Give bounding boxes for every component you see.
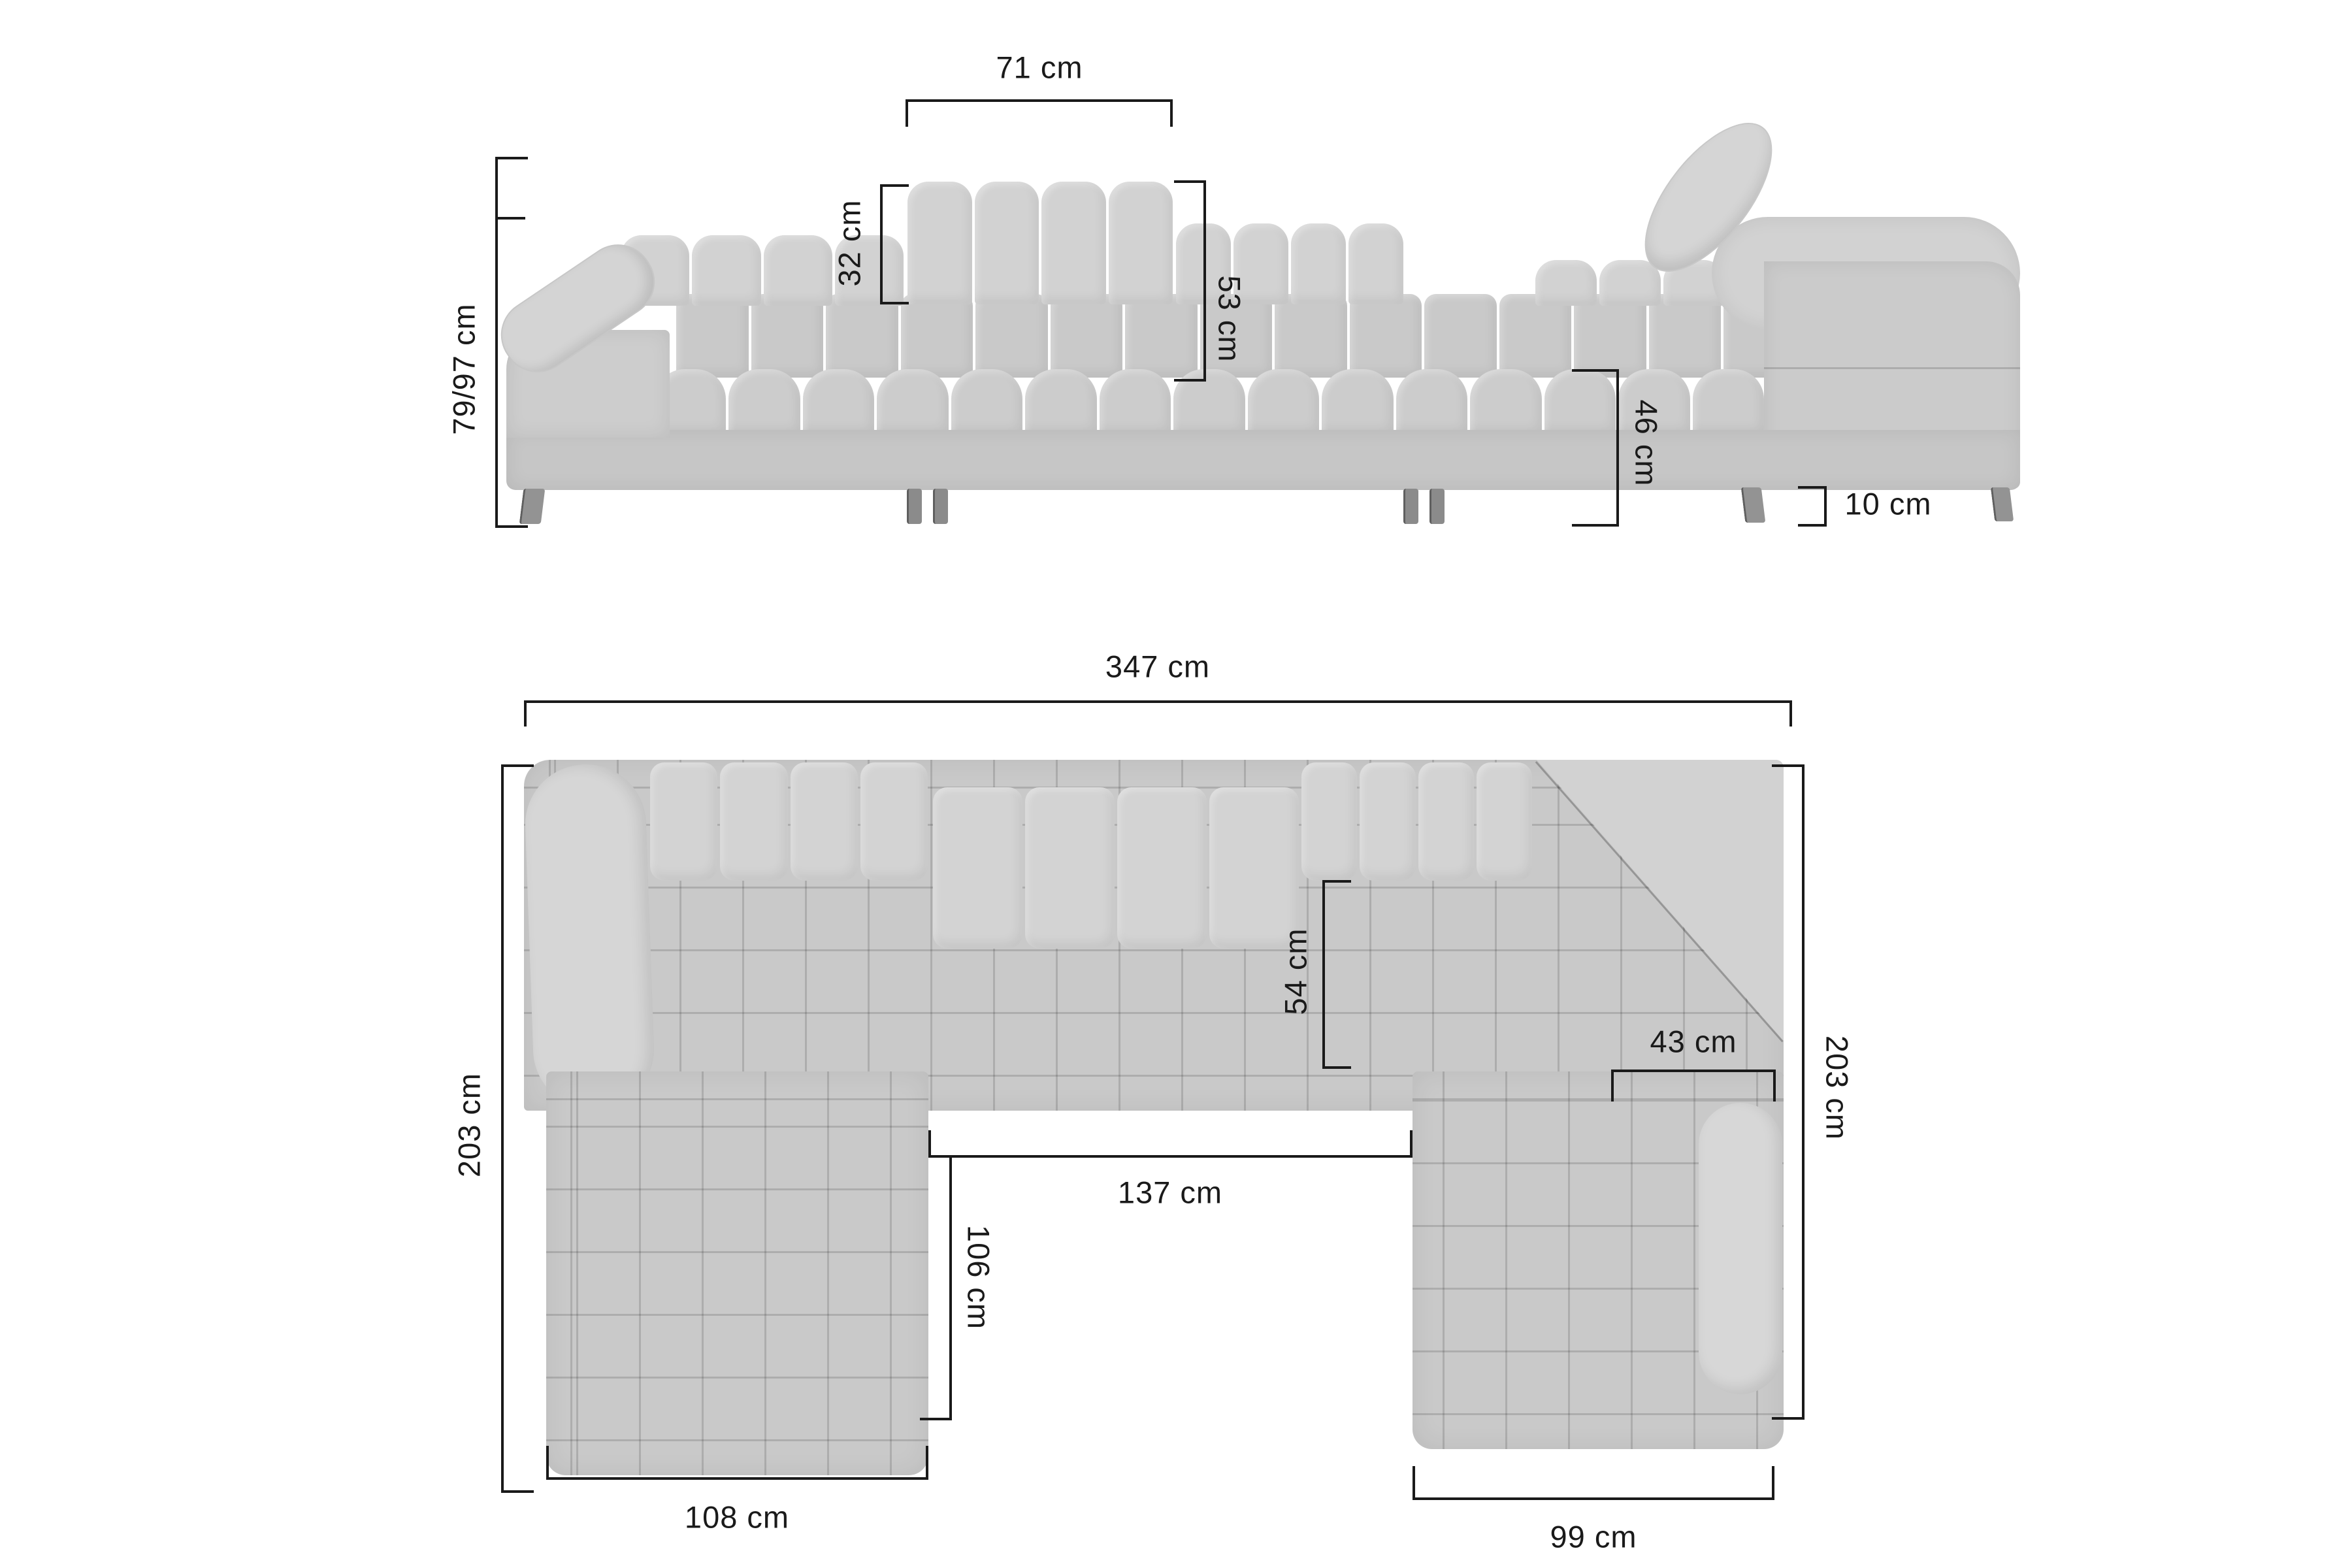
cushion-segment (676, 294, 749, 378)
plan-right-armrest (1699, 1103, 1782, 1394)
front-leg (1403, 489, 1418, 524)
bracket-total-width (524, 700, 1792, 727)
label-headrest-width: 71 cm (996, 50, 1083, 86)
cushion-segment (1041, 182, 1106, 304)
bracket-right-depth (1772, 764, 1805, 1420)
bracket-total-height-midtick (498, 217, 525, 220)
bracket-seat-height (1572, 369, 1619, 527)
bracket-inner-width (928, 1130, 1413, 1158)
label-back-height: 53 cm (1212, 276, 1248, 363)
bracket-back-height (1174, 180, 1206, 382)
cushion-segment (1470, 369, 1541, 434)
cushion-segment (764, 235, 832, 306)
label-armrest-width: 43 cm (1650, 1024, 1737, 1060)
front-leg (1429, 489, 1445, 524)
bracket-headrest-rise (880, 184, 909, 304)
front-leg (1741, 487, 1766, 523)
cushion-segment (933, 787, 1022, 949)
cushion-segment (751, 294, 824, 378)
cushion-segment (1348, 223, 1403, 304)
cushion-segment (1649, 294, 1722, 378)
front-headrest-center (907, 182, 1173, 304)
cushion-segment (1301, 762, 1357, 881)
cushion-segment (1291, 223, 1346, 304)
bracket-armrest-width (1611, 1070, 1776, 1102)
bracket-total-height (495, 157, 528, 528)
cushion-segment (1025, 369, 1096, 434)
front-leg (1991, 487, 2014, 521)
cushion-segment (1396, 369, 1467, 434)
front-right-arm-seam (1764, 367, 2020, 369)
plan-backrest-left (650, 762, 928, 881)
label-left-chaise-width: 108 cm (685, 1499, 789, 1535)
cushion-segment (1025, 787, 1115, 949)
cushion-segment (826, 294, 898, 378)
cushion-segment (1360, 762, 1415, 881)
cushion-segment (1117, 787, 1207, 949)
cushion-segment (728, 369, 800, 434)
cushion-segment (1350, 294, 1422, 378)
front-view: 71 cm 32 cm 53 cm 79/97 cm 46 cm 10 cm (0, 0, 2352, 588)
front-leg (933, 489, 948, 524)
cushion-segment (1109, 182, 1173, 304)
cushion-segment (1100, 369, 1171, 434)
cushion-segment (791, 762, 858, 881)
cushion-segment (901, 294, 973, 378)
cushion-segment (1051, 294, 1123, 378)
cushion-segment (1209, 787, 1299, 949)
cushion-segment (803, 369, 874, 434)
cushion-segment (1599, 260, 1661, 306)
cushion-segment (907, 182, 972, 304)
cushion-segment (951, 369, 1022, 434)
bracket-left-depth (501, 764, 534, 1493)
bracket-left-chaise-width (546, 1446, 928, 1480)
label-right-depth: 203 cm (1820, 1036, 1855, 1140)
cushion-segment (860, 762, 928, 881)
cushion-segment (1424, 294, 1497, 378)
cushion-segment (1499, 294, 1572, 378)
cushion-segment (1248, 369, 1319, 434)
front-base-band (506, 430, 2020, 490)
plan-backrest-right (1301, 762, 1532, 881)
plan-left-chaise (546, 1071, 928, 1475)
cushion-segment (720, 762, 787, 881)
cushion-segment (975, 294, 1048, 378)
front-headrest-right (1176, 223, 1403, 304)
label-total-width: 347 cm (1105, 649, 1210, 685)
top-view: 347 cm 203 cm 203 cm 54 cm 43 cm 137 cm … (0, 588, 2352, 1568)
cushion-segment (1418, 762, 1474, 881)
bracket-leg-height (1798, 486, 1827, 527)
cushion-segment (1322, 369, 1393, 434)
label-right-chaise-width: 99 cm (1550, 1519, 1637, 1555)
label-headrest-rise: 32 cm (832, 200, 868, 287)
bracket-seat-depth (1322, 880, 1351, 1069)
bracket-inner-length (920, 1155, 952, 1420)
label-total-height: 79/97 cm (446, 303, 482, 434)
bracket-headrest-width (906, 99, 1173, 127)
label-inner-length: 106 cm (961, 1225, 997, 1330)
plan-headrest-center (933, 787, 1299, 949)
label-inner-width: 137 cm (1118, 1175, 1222, 1211)
plan-left-armrest (523, 762, 656, 1111)
front-leg (907, 489, 922, 524)
cushion-segment (1574, 294, 1646, 378)
cushion-segment (650, 762, 717, 881)
cushion-segment (1535, 260, 1597, 306)
cushion-segment (1477, 762, 1532, 881)
label-seat-height: 46 cm (1629, 400, 1665, 487)
cushion-segment (692, 235, 760, 306)
cushion-segment (1275, 294, 1347, 378)
cushion-segment (1693, 369, 1764, 434)
label-leg-height: 10 cm (1845, 486, 1932, 522)
cushion-segment (877, 369, 948, 434)
bracket-right-chaise-width (1413, 1466, 1774, 1500)
label-left-depth: 203 cm (451, 1073, 487, 1177)
sofa-dimension-diagram: 71 cm 32 cm 53 cm 79/97 cm 46 cm 10 cm (0, 0, 2352, 1568)
label-seat-depth: 54 cm (1278, 928, 1314, 1015)
cushion-segment (975, 182, 1039, 304)
